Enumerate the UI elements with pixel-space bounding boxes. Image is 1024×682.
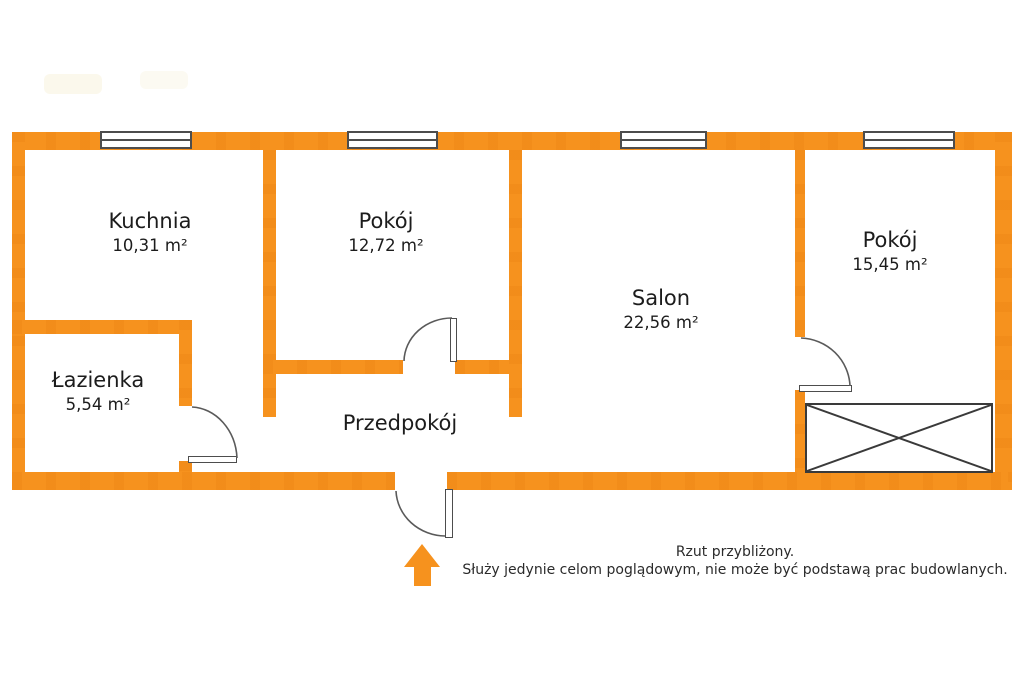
door-leaf-entrance xyxy=(445,489,453,538)
room-label-kuchnia: Kuchnia 10,31 m² xyxy=(60,209,240,256)
watermark xyxy=(44,74,102,94)
window-kuchnia xyxy=(100,131,192,149)
room-label-pokoj-2: Pokój 15,45 m² xyxy=(800,228,980,275)
door-leaf-lazienka xyxy=(188,456,237,463)
entrance-arrow-icon xyxy=(404,544,440,586)
wall-salon-pokoj-bottom xyxy=(795,390,805,472)
window-mullion xyxy=(102,139,190,141)
wall-left xyxy=(12,132,25,490)
wall-salon-left xyxy=(509,150,522,417)
room-label-salon: Salon 22,56 m² xyxy=(571,286,751,333)
room-name: Kuchnia xyxy=(60,209,240,234)
room-label-lazienka: Łazienka 5,54 m² xyxy=(8,368,188,415)
window-pokoj-1 xyxy=(347,131,438,149)
room-area: 15,45 m² xyxy=(800,255,980,275)
window-mullion xyxy=(622,139,705,141)
wall-bottom-left xyxy=(12,472,395,490)
disclaimer-line-1: Rzut przybliżony. xyxy=(455,543,1015,561)
watermark xyxy=(140,71,188,89)
room-area: 5,54 m² xyxy=(8,395,188,415)
window-mullion xyxy=(865,139,953,141)
room-label-przedpokoj: Przedpokój xyxy=(310,411,490,436)
wall-kuchnia-pokoj xyxy=(263,150,276,417)
window-mullion xyxy=(349,139,436,141)
room-name: Pokój xyxy=(800,228,980,253)
room-area: 10,31 m² xyxy=(60,236,240,256)
window-salon xyxy=(620,131,707,149)
door-leaf-pokoj-2 xyxy=(799,385,852,392)
window-pokoj-2 xyxy=(863,131,955,149)
room-name: Salon xyxy=(571,286,751,311)
wall-pokoj1-bottom-b xyxy=(455,360,509,374)
wall-bottom-right xyxy=(447,472,1008,490)
room-label-pokoj-1: Pokój 12,72 m² xyxy=(296,209,476,256)
wall-right xyxy=(995,132,1012,490)
door-swing-pokoj-1 xyxy=(404,318,452,361)
room-area: 12,72 m² xyxy=(296,236,476,256)
room-area: 22,56 m² xyxy=(571,313,751,333)
room-name: Łazienka xyxy=(8,368,188,393)
wall-kuchnia-bottom xyxy=(12,320,192,334)
wardrobe xyxy=(805,403,993,473)
wardrobe-cross-icon xyxy=(807,405,991,471)
room-name: Pokój xyxy=(296,209,476,234)
disclaimer: Rzut przybliżony. Służy jedynie celom po… xyxy=(455,543,1015,579)
door-swing-pokoj-2 xyxy=(801,338,850,386)
room-name: Przedpokój xyxy=(310,411,490,436)
wall-pokoj1-bottom-a xyxy=(263,360,403,374)
door-swing-lazienka xyxy=(192,407,237,458)
door-leaf-pokoj-1 xyxy=(450,318,457,362)
floor-plan: Kuchnia 10,31 m² Pokój 12,72 m² Salon 22… xyxy=(0,0,1024,682)
door-swing-entrance xyxy=(396,491,445,536)
disclaimer-line-2: Służy jedynie celom poglądowym, nie może… xyxy=(455,561,1015,579)
